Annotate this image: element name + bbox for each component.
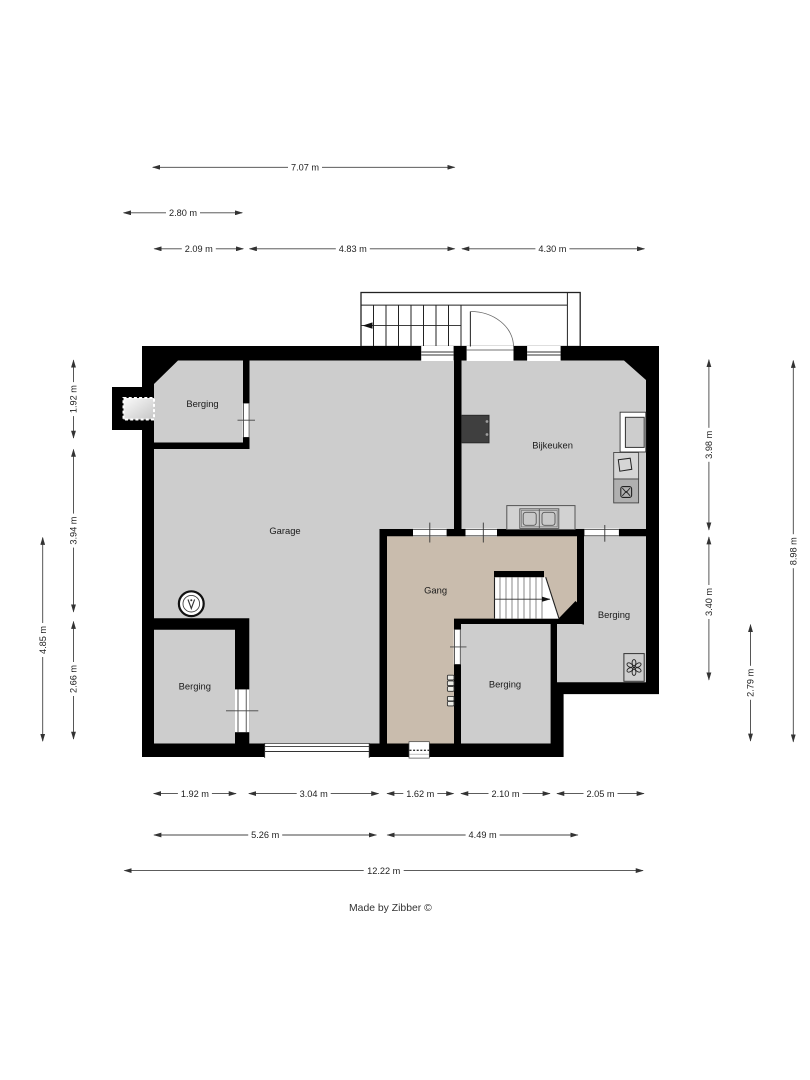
svg-text:1.92 m: 1.92 m: [69, 385, 79, 413]
svg-text:8.98 m: 8.98 m: [789, 537, 799, 565]
svg-text:4.49 m: 4.49 m: [469, 830, 497, 840]
svg-text:3.40 m: 3.40 m: [704, 588, 714, 616]
svg-text:4.83 m: 4.83 m: [339, 244, 367, 254]
svg-text:4.85 m: 4.85 m: [38, 626, 48, 654]
svg-text:4.30 m: 4.30 m: [538, 244, 566, 254]
svg-text:2.09 m: 2.09 m: [185, 244, 213, 254]
svg-text:12.22 m: 12.22 m: [367, 866, 401, 876]
svg-text:Garage: Garage: [269, 525, 300, 536]
svg-text:1.62 m: 1.62 m: [406, 789, 434, 799]
svg-text:7.07 m: 7.07 m: [291, 163, 319, 173]
svg-text:3.94 m: 3.94 m: [69, 516, 79, 544]
svg-text:2.79 m: 2.79 m: [746, 668, 756, 696]
svg-text:Berging: Berging: [186, 398, 218, 409]
svg-text:1.92 m: 1.92 m: [181, 789, 209, 799]
svg-text:Berging: Berging: [598, 609, 630, 620]
svg-text:Berging: Berging: [489, 679, 521, 690]
svg-text:3.98 m: 3.98 m: [704, 430, 714, 458]
svg-text:Berging: Berging: [179, 680, 211, 691]
svg-text:5.26 m: 5.26 m: [251, 830, 279, 840]
svg-text:Made by Zibber ©: Made by Zibber ©: [349, 903, 432, 914]
svg-text:Gang: Gang: [424, 585, 447, 596]
svg-text:2.66 m: 2.66 m: [69, 665, 79, 693]
svg-text:Bijkeuken: Bijkeuken: [532, 440, 573, 451]
svg-text:2.10 m: 2.10 m: [491, 789, 519, 799]
svg-text:2.80 m: 2.80 m: [169, 208, 197, 218]
svg-text:3.04 m: 3.04 m: [300, 789, 328, 799]
svg-text:2.05 m: 2.05 m: [586, 789, 614, 799]
